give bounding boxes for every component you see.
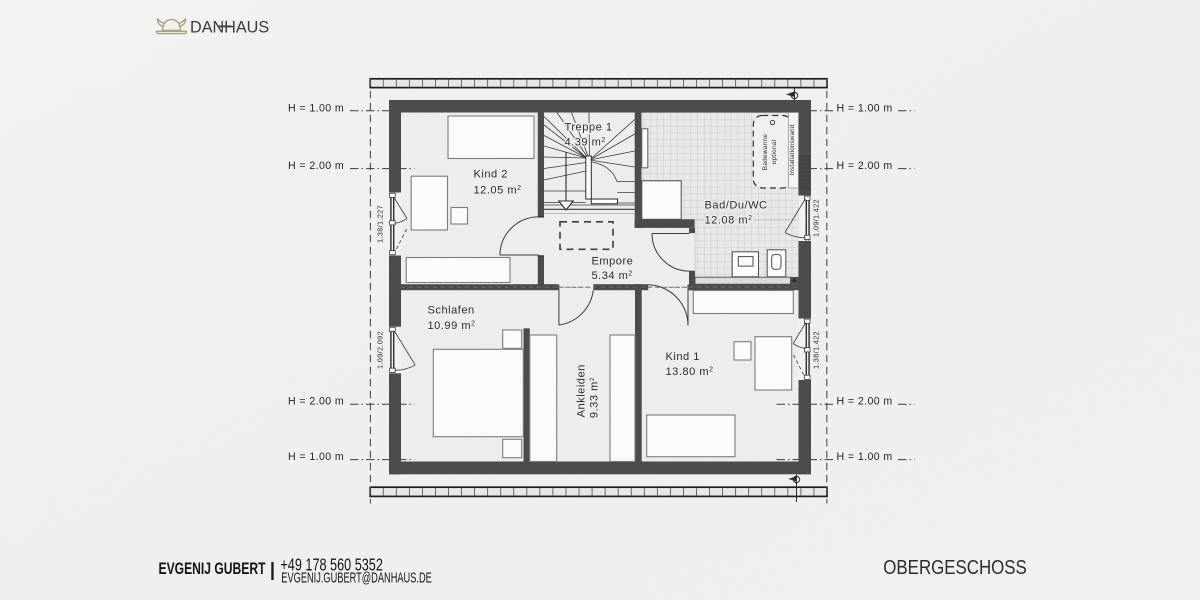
- svg-text:EVGENIJ GUBERT: EVGENIJ GUBERT: [159, 560, 266, 578]
- svg-text:OBERGESCHOSS: OBERGESCHOSS: [883, 557, 1027, 579]
- svg-text:EVGENIJ.GUBERT@DANHAUS.DE: EVGENIJ.GUBERT@DANHAUS.DE: [281, 570, 432, 586]
